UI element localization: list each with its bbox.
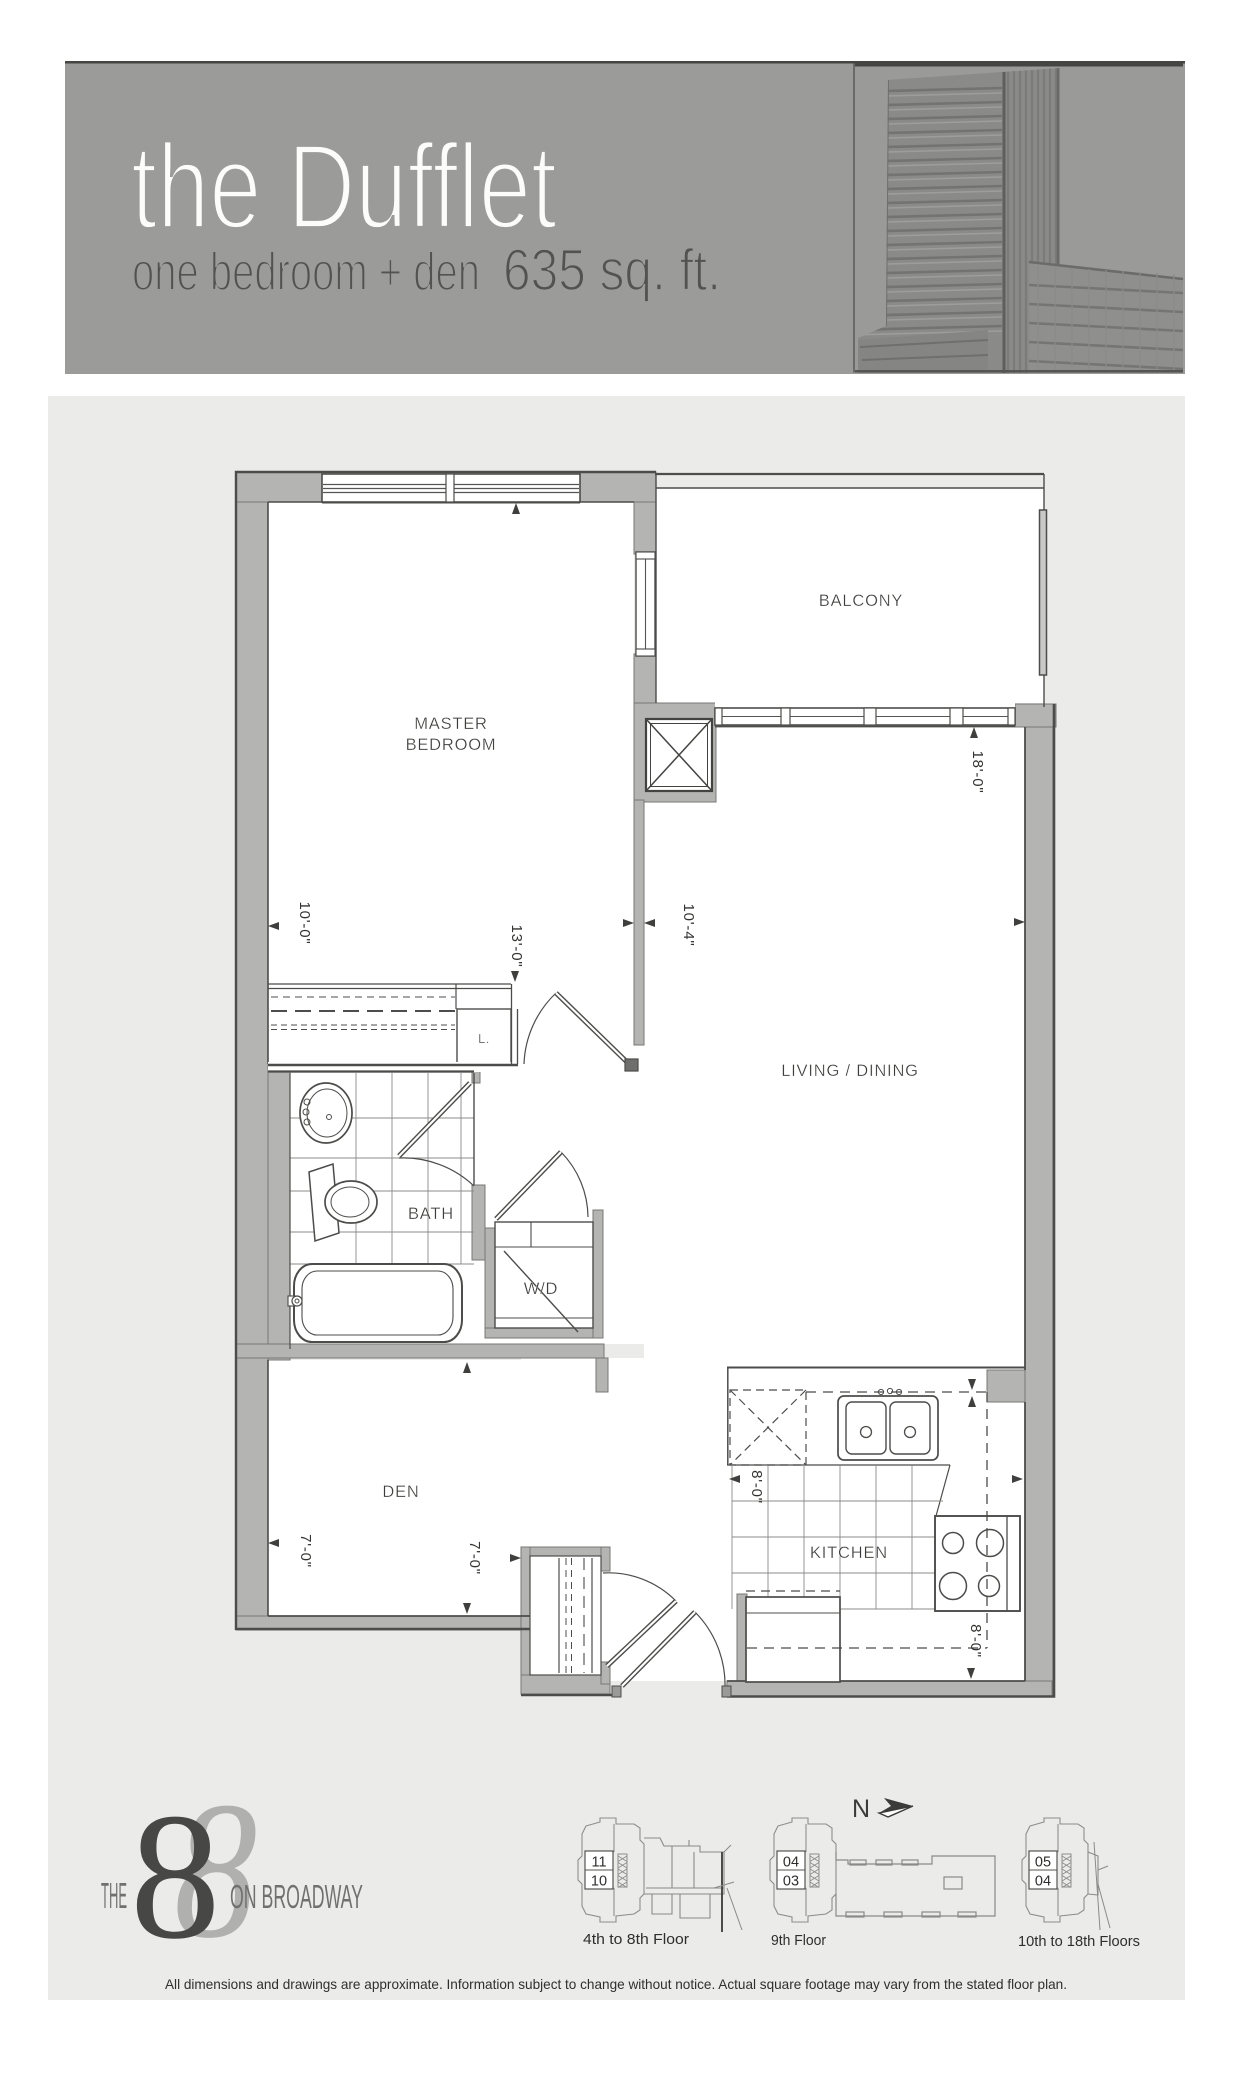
svg-text:All dimensions and drawings ar: All dimensions and drawings are approxim… — [165, 1976, 1067, 1992]
svg-text:BEDROOM: BEDROOM — [406, 736, 497, 754]
svg-text:ON BROADWAY: ON BROADWAY — [230, 1878, 363, 1915]
svg-text:DEN: DEN — [382, 1483, 419, 1501]
svg-text:04: 04 — [783, 1855, 799, 1871]
svg-text:LIVING / DINING: LIVING / DINING — [781, 1062, 919, 1080]
svg-text:13'-0": 13'-0" — [508, 924, 525, 967]
svg-text:635 sq. ft.: 635 sq. ft. — [503, 238, 721, 303]
svg-text:MASTER: MASTER — [414, 715, 488, 733]
svg-text:the Dufflet: the Dufflet — [131, 118, 557, 254]
svg-text:BATH: BATH — [408, 1205, 454, 1223]
svg-text:10'-0": 10'-0" — [296, 901, 313, 944]
svg-text:04: 04 — [1035, 1874, 1051, 1890]
svg-text:8'-0": 8'-0" — [967, 1624, 984, 1658]
svg-text:4th to 8th Floor: 4th to 8th Floor — [583, 1932, 689, 1948]
svg-text:10th to 18th Floors: 10th to 18th Floors — [1018, 1934, 1140, 1950]
svg-text:BALCONY: BALCONY — [819, 592, 903, 610]
svg-text:9th Floor: 9th Floor — [771, 1933, 826, 1949]
svg-text:18'-0": 18'-0" — [969, 750, 986, 793]
svg-text:N: N — [852, 1795, 870, 1823]
svg-text:8'-0": 8'-0" — [748, 1470, 765, 1504]
svg-text:W/D: W/D — [524, 1280, 558, 1298]
svg-text:THE: THE — [101, 1875, 127, 1916]
svg-text:05: 05 — [1035, 1855, 1051, 1871]
svg-text:10: 10 — [591, 1874, 607, 1890]
svg-text:KITCHEN: KITCHEN — [810, 1544, 888, 1562]
svg-text:8: 8 — [130, 1777, 221, 1977]
svg-text:03: 03 — [783, 1874, 799, 1890]
svg-text:7'-0": 7'-0" — [466, 1541, 483, 1575]
svg-text:10'-4": 10'-4" — [680, 903, 697, 946]
svg-text:7'-0": 7'-0" — [297, 1534, 314, 1568]
svg-text:11: 11 — [591, 1855, 606, 1871]
svg-text:L.: L. — [478, 1031, 490, 1046]
svg-text:one bedroom + den: one bedroom + den — [132, 242, 480, 302]
